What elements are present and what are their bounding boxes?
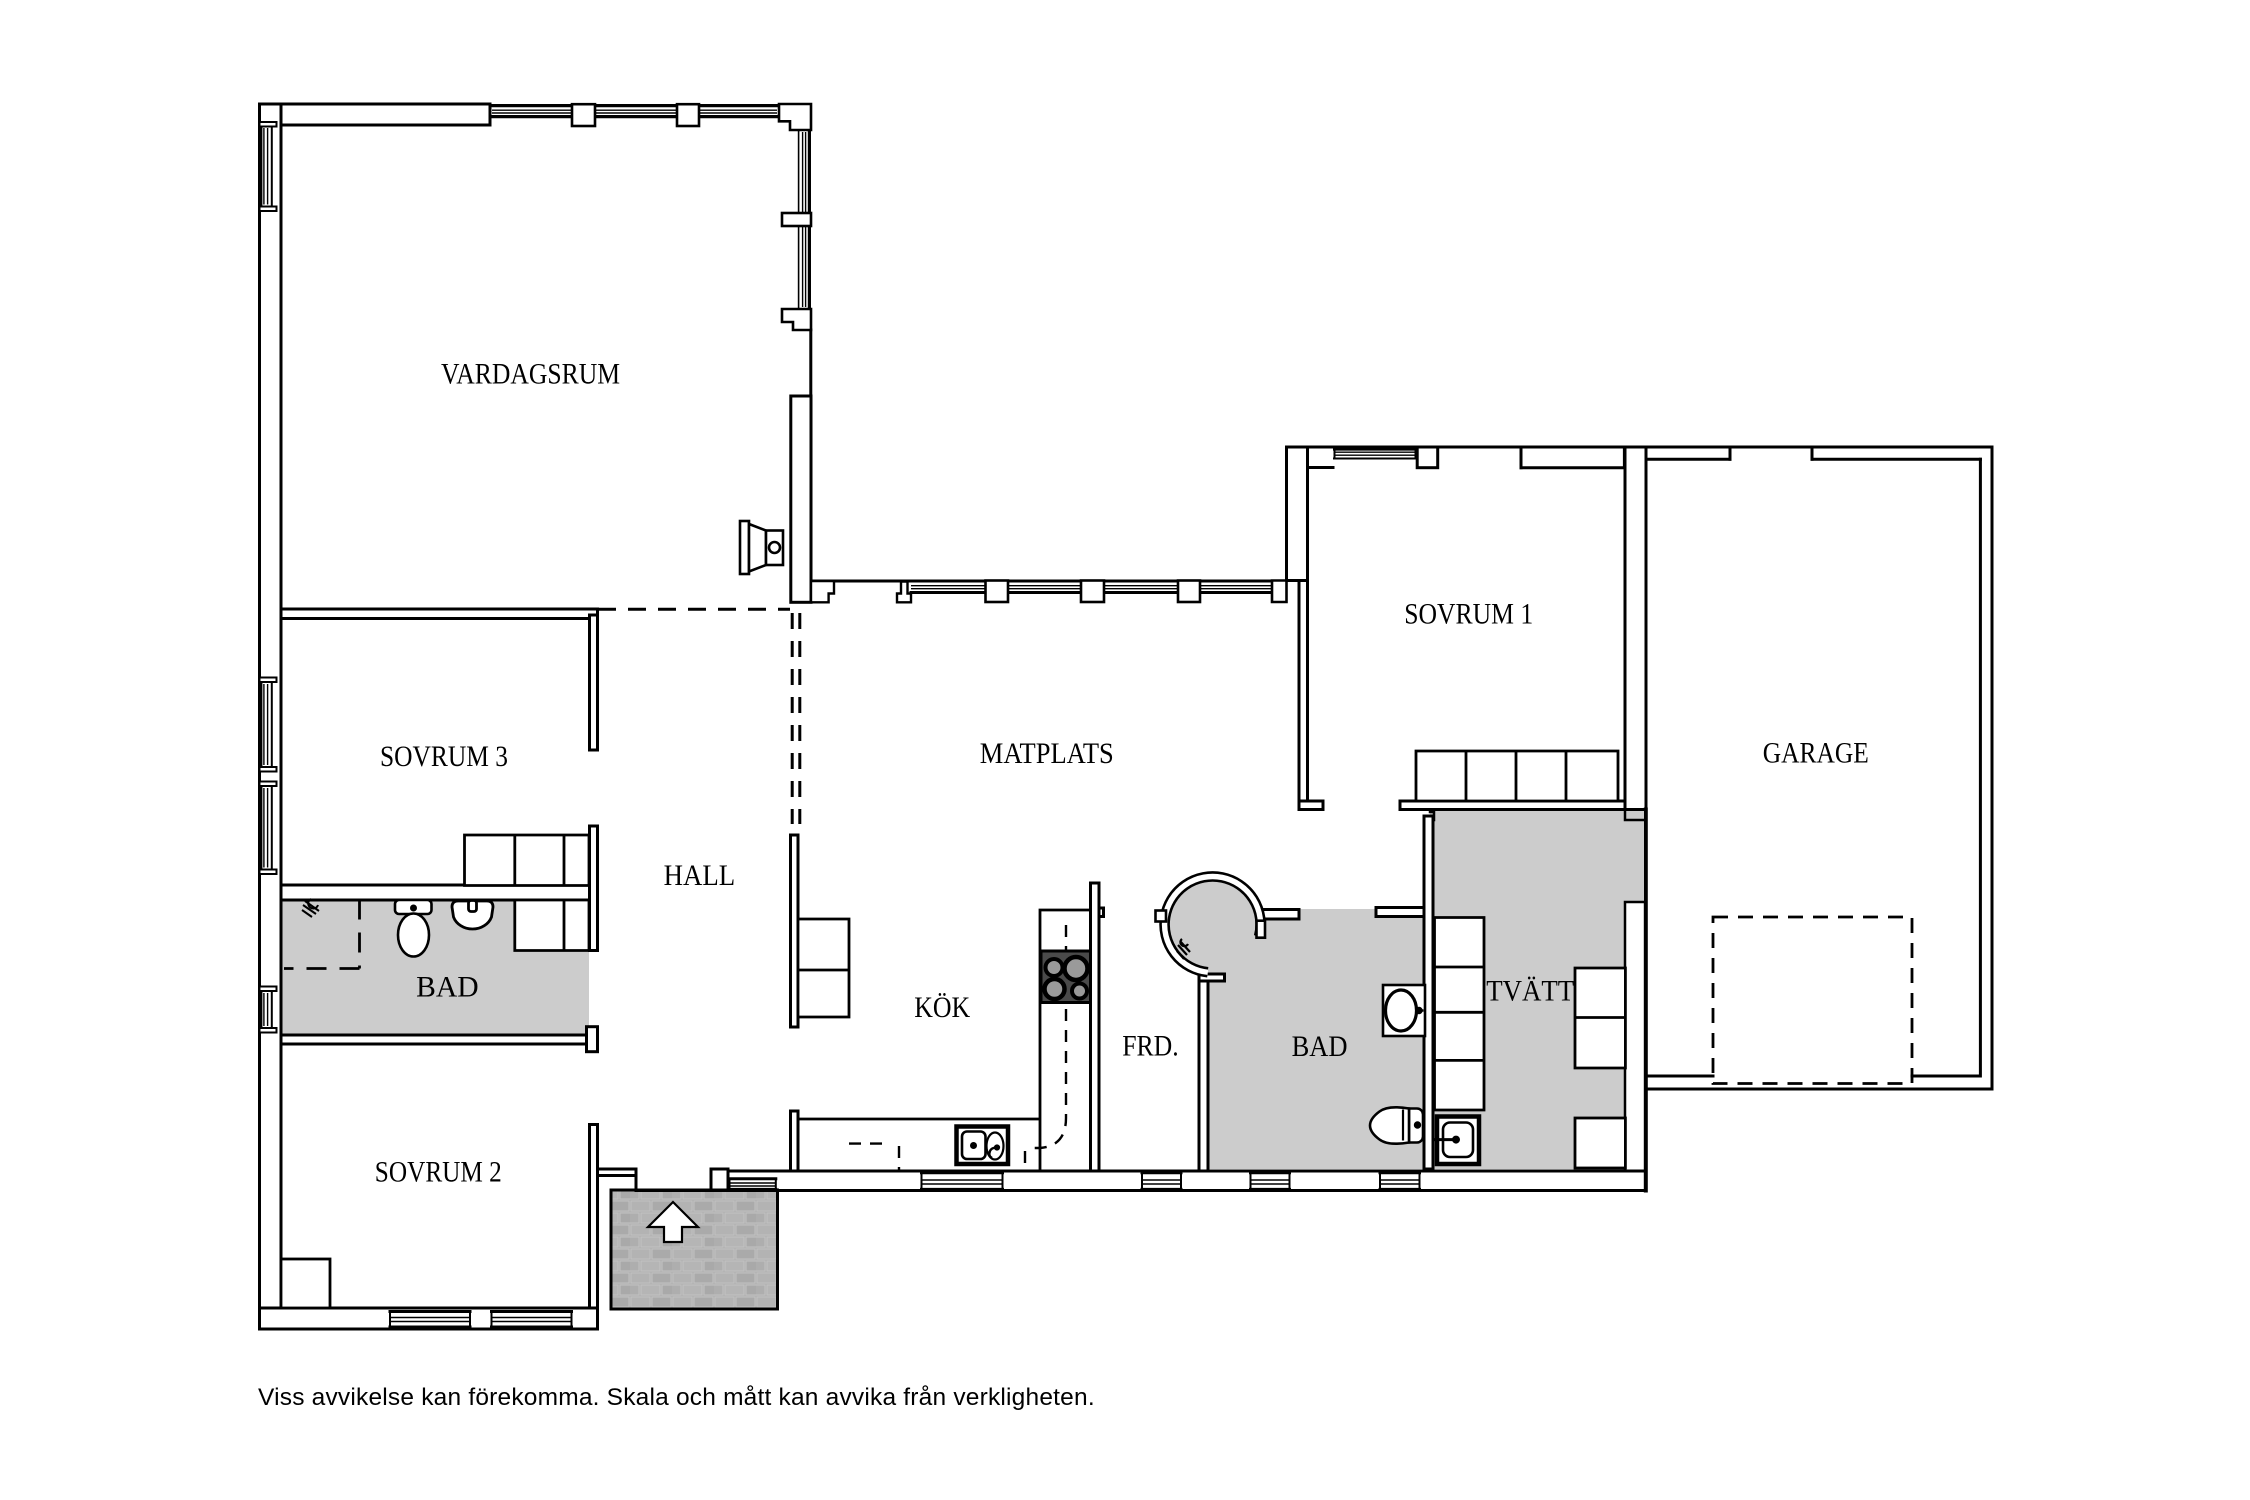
svg-text:SOVRUM 2: SOVRUM 2 [375, 1157, 502, 1189]
svg-text:SOVRUM 1: SOVRUM 1 [1404, 599, 1533, 631]
svg-text:BAD: BAD [416, 972, 479, 1004]
svg-text:VARDAGSRUM: VARDAGSRUM [441, 359, 620, 391]
svg-text:BAD: BAD [1292, 1031, 1348, 1063]
svg-text:Viss avvikelse kan förekomma.: Viss avvikelse kan förekomma. Skala och … [258, 1384, 1095, 1411]
svg-text:MATPLATS: MATPLATS [980, 738, 1114, 770]
svg-text:FRD.: FRD. [1122, 1030, 1179, 1062]
svg-text:GARAGE: GARAGE [1763, 737, 1869, 769]
svg-text:KÖK: KÖK [914, 992, 970, 1024]
svg-text:TVÄTT: TVÄTT [1486, 976, 1574, 1008]
svg-text:SOVRUM 3: SOVRUM 3 [380, 741, 508, 773]
svg-text:HALL: HALL [664, 860, 736, 892]
